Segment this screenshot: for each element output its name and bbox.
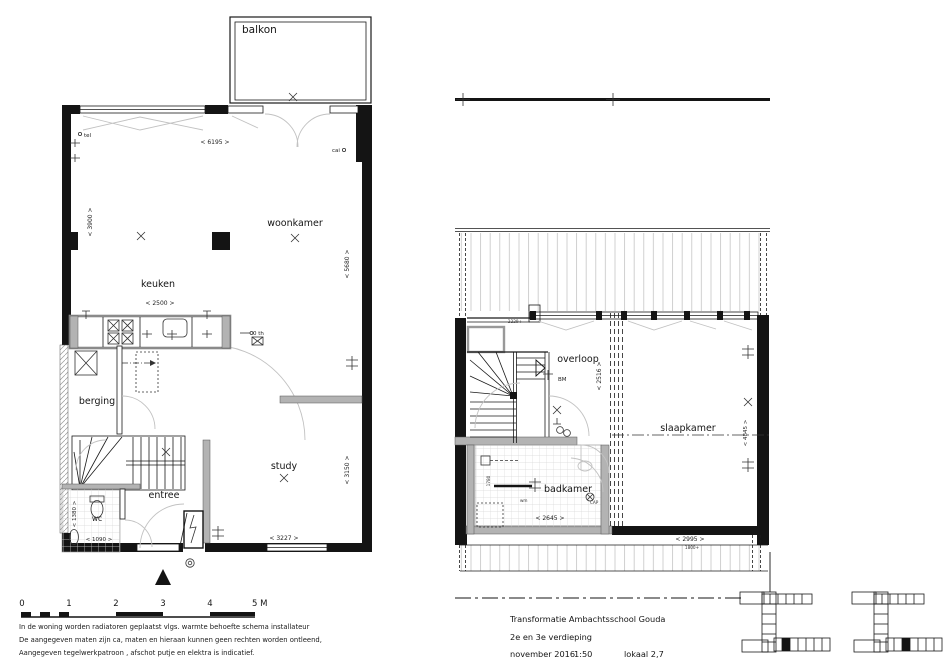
dim-slaapkamer-w: < 2995 >	[675, 536, 704, 543]
note-line-1: In de woning worden radiatoren geplaatst…	[19, 623, 310, 631]
floor-title: 2e en 3e verdieping	[510, 632, 592, 642]
dim-wc-width: < 1090 >	[86, 537, 113, 543]
scale-tick-2: 2	[113, 599, 118, 609]
room-reference: lokaal 2,7	[624, 649, 664, 659]
room-label-berging: berging	[79, 396, 115, 407]
balcony-door-arcs	[265, 114, 330, 147]
room-label-overloop: overloop	[557, 354, 598, 365]
level-marker-stair: 2229+	[508, 319, 523, 324]
level-marker-low: 1800+	[685, 545, 700, 550]
dim-keuken: < 2500 >	[145, 300, 174, 307]
duct-shaft	[611, 313, 623, 526]
floor-plan-left: balkon woonkamer keuken berging entree s…	[60, 17, 372, 594]
note-line-2: De aangegeven maten zijn ca, maten en hi…	[19, 636, 322, 644]
key-plan-2-highlight	[902, 638, 910, 651]
scale-tick-3: 3	[160, 599, 165, 609]
window-swing-line	[232, 116, 258, 128]
dim-left: < 3900 >	[87, 207, 94, 236]
scale-tick-5: 5 M	[252, 599, 267, 609]
entrance-arrow-icon	[155, 569, 171, 585]
key-plan-1	[740, 592, 830, 652]
dim-badkamer-h: 1780	[486, 475, 491, 486]
room-label-wc: wc	[92, 514, 102, 523]
ceiling-lights	[137, 232, 299, 482]
key-plan-1-highlight	[782, 638, 790, 651]
room-label-keuken: keuken	[141, 279, 175, 290]
room-label-entree: entree	[149, 490, 180, 501]
dim-right-upper: < 5680 >	[344, 249, 351, 278]
label-cai: cai	[332, 148, 340, 154]
scale-tick-0: 0	[19, 599, 24, 609]
staircase-right-plan	[470, 352, 545, 443]
drawing-canvas: balkon woonkamer keuken berging entree s…	[0, 0, 952, 672]
interior-door-arc	[210, 345, 305, 440]
label-bm: BM	[558, 377, 567, 383]
key-plan-2	[852, 592, 942, 652]
roof-hatch-lower	[460, 545, 768, 571]
label-wm: wm	[520, 498, 528, 503]
berging-fixtures	[75, 346, 158, 434]
cai-outlet-icon	[342, 148, 345, 151]
dim-slaapkamer-h: < 4845 >	[743, 419, 749, 446]
note-line-3: Aangegeven tegelwerkpatroon , afschot pu…	[19, 649, 254, 657]
drawing-date: november 2016	[510, 649, 575, 659]
dim-wc-height: < 1380 >	[72, 500, 78, 527]
drawing-scale: 1:50	[574, 649, 592, 659]
airflow-arrow	[150, 360, 156, 366]
front-door-arc	[140, 504, 184, 548]
scale-tick-1: 1	[66, 599, 71, 609]
label-cap: CAP	[590, 500, 599, 505]
partition-wall	[280, 396, 362, 403]
label-tel: tel	[84, 133, 92, 139]
scale-tick-4: 4	[207, 599, 212, 609]
floor-plan-sheet: balkon woonkamer keuken berging entree s…	[0, 0, 952, 672]
kitchen-counter	[70, 311, 230, 348]
label-thermostat: 0 th	[253, 331, 264, 337]
dim-overloop: < 2516 >	[596, 361, 603, 390]
doorbell-icon	[186, 559, 194, 567]
room-label-woonkamer: woonkamer	[267, 218, 323, 229]
floor-plan-right: overloop slaapkamer badkamer < 2516 > < …	[455, 93, 770, 571]
room-label-balkon: balkon	[242, 24, 277, 36]
window-swing-lines	[83, 116, 203, 130]
roof-hatch-upper	[458, 233, 768, 311]
room-label-study: study	[271, 461, 298, 472]
dim-right-lower: < 3150 >	[344, 455, 351, 484]
scale-bar: 0 1 2 3 4 5 M	[19, 599, 267, 617]
notes-block: In de woning worden radiatoren geplaatst…	[19, 623, 322, 657]
dim-bottom: < 3227 >	[269, 535, 298, 542]
tel-outlet-icon	[78, 132, 81, 135]
dim-top: < 6195 >	[200, 139, 229, 146]
dim-badkamer-w: < 2645 >	[535, 515, 564, 522]
room-label-badkamer: badkamer	[544, 484, 592, 495]
staircase-left-plan	[72, 436, 185, 490]
stair-enclosure	[455, 327, 577, 445]
room-label-slaapkamer: slaapkamer	[660, 423, 716, 434]
meter-cupboard	[180, 511, 203, 548]
project-title: Transformatie Ambachtsschool Gouda	[509, 614, 665, 624]
